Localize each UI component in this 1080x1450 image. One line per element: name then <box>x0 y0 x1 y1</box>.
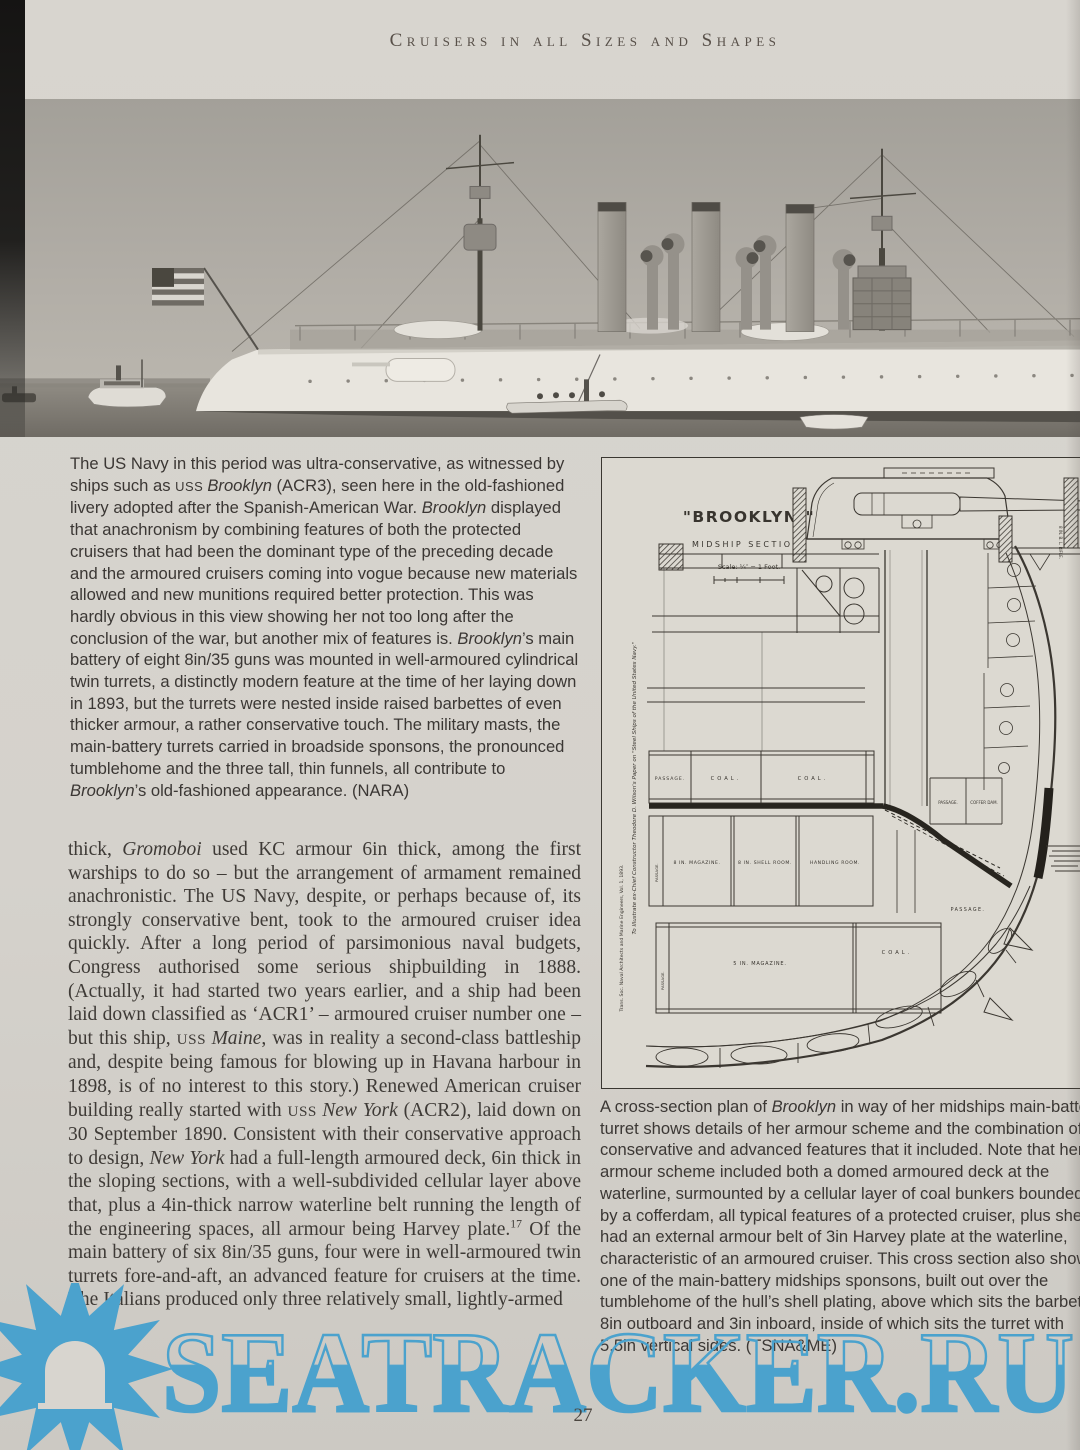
sponson-armour-wall <box>1064 478 1078 548</box>
page-number: 27 <box>43 1405 1080 1427</box>
ammunition-trunk <box>885 550 927 913</box>
label-passage-coal: PASSAGE. <box>655 776 686 782</box>
armoured-deck <box>649 806 1011 886</box>
label-coal-2: COAL. <box>798 776 829 782</box>
label-passage-bottom: PASSAGE. <box>660 971 665 990</box>
diagram-subtitle: MIDSHIP SECTION. <box>692 540 806 549</box>
label-shell-room: 8 IN. SHELL ROOM. <box>738 860 792 866</box>
barbette-wall-left <box>793 488 806 562</box>
ships-boat <box>741 323 829 341</box>
turret-rollers <box>842 539 1006 549</box>
label-passage-hull: PASSAGE. <box>951 907 986 913</box>
ship-hull <box>196 341 1080 423</box>
broadside-turret <box>386 358 455 381</box>
photo-caption: The US Navy in this period was ultra-con… <box>70 453 582 801</box>
double-bottom <box>646 886 1030 1068</box>
gun-barrel <box>960 497 1080 511</box>
label-magazine-5in: 5 IN. MAGAZINE. <box>733 961 787 967</box>
diagram-side-note-2: Trans. Soc. Naval Architects and Marine … <box>619 864 625 1012</box>
label-coal-1: COAL. <box>711 776 742 782</box>
barbette-wall-right <box>999 516 1012 562</box>
label-handling-room: HANDLING ROOM. <box>810 860 860 866</box>
scale-bar <box>714 576 784 584</box>
diagram-side-note: To Illustrate ex-Chief Constructor Theod… <box>632 641 638 934</box>
label-magazine-8in: 8 IN. MAGAZINE. <box>673 860 720 866</box>
book-page: Cruisers in all Sizes and Shapes <box>0 0 1080 1450</box>
body-paragraph: thick, Gromoboi used KC armour 6in thick… <box>68 838 581 1312</box>
ships-boat <box>394 321 482 339</box>
side-cellular-layer <box>984 553 1050 790</box>
scan-edge-shadow <box>0 0 25 437</box>
waterline-armour-belt <box>1038 788 1049 878</box>
label-coal-3: COAL. <box>882 950 913 956</box>
label-passage-magazine: PASSAGE. <box>654 863 659 882</box>
waterline-hatching <box>1046 846 1080 871</box>
lower-magazine-row <box>656 923 941 1013</box>
ship-photo-illustration <box>0 99 1080 437</box>
page-title: Cruisers in all Sizes and Shapes <box>45 30 1080 52</box>
diagram-scale-label: Scale: ¼″ = 1 Foot. <box>718 563 780 571</box>
dinghy-right <box>800 415 868 429</box>
label-passage-side: PASSAGE. <box>938 800 958 805</box>
midship-section-diagram: "BROOKLYN." MIDSHIP SECTION. Scale: ¼″ =… <box>602 458 1080 1087</box>
diagram-caption: A cross-section plan of Brooklyn in way … <box>600 1096 1080 1356</box>
midship-section-figure: "BROOKLYN." MIDSHIP SECTION. Scale: ¼″ =… <box>601 457 1080 1089</box>
label-coffer-dam: COFFER DAM. <box>970 800 998 805</box>
turret <box>807 468 1080 549</box>
ship-photograph <box>0 99 1080 437</box>
